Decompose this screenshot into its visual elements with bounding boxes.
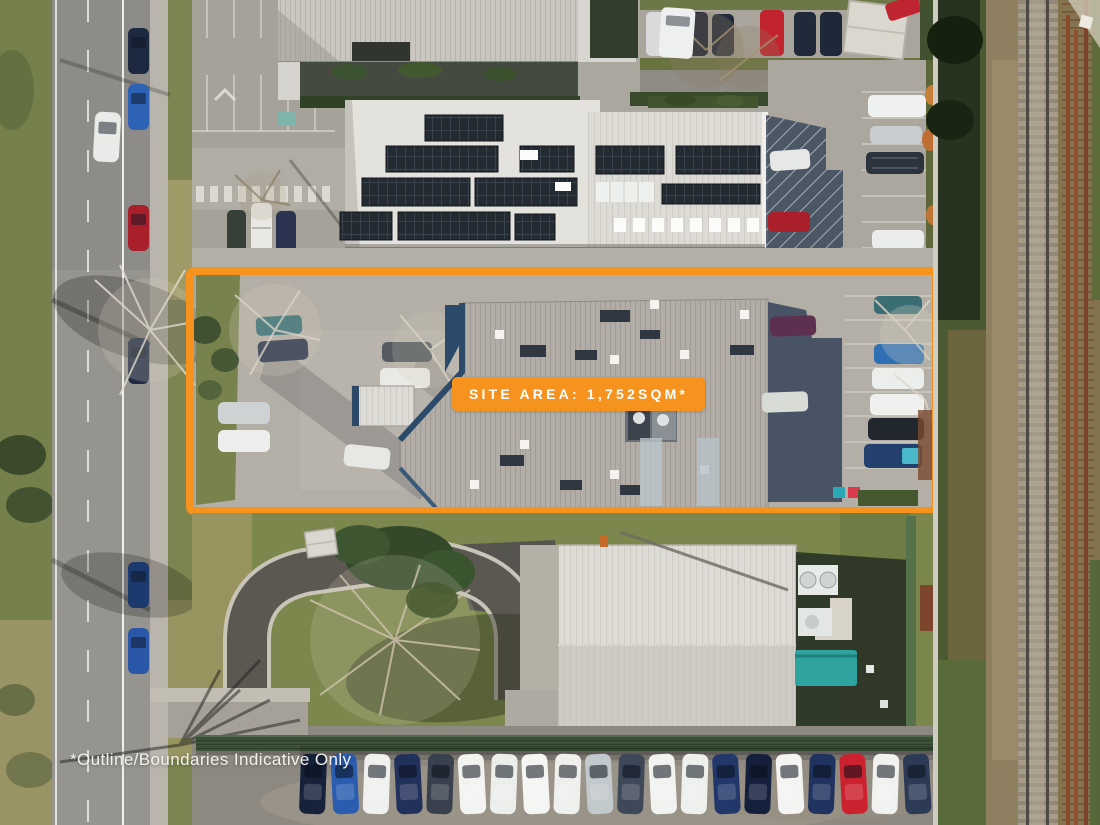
parked-car bbox=[712, 753, 741, 814]
small-shed bbox=[304, 528, 337, 558]
street-parked-car bbox=[128, 28, 149, 74]
parked-car bbox=[681, 754, 709, 815]
parked-car bbox=[775, 753, 804, 814]
street-parked-car bbox=[128, 562, 149, 608]
parked-car bbox=[808, 754, 836, 815]
island-tree bbox=[310, 555, 480, 725]
parked-car bbox=[648, 753, 677, 814]
street-parked-car bbox=[128, 84, 149, 130]
parked-car bbox=[585, 753, 614, 814]
roof-plant bbox=[625, 408, 677, 442]
green-fence bbox=[906, 516, 916, 730]
street-parked-car bbox=[128, 628, 149, 674]
moving-car bbox=[93, 111, 122, 162]
parked-car bbox=[426, 754, 454, 815]
parked-car bbox=[617, 754, 645, 815]
boundary-disclaimer: *Outline/Boundaries Indicative Only bbox=[70, 750, 351, 770]
parked-car bbox=[553, 754, 581, 815]
equipment-yard bbox=[795, 552, 910, 730]
rail-corridor bbox=[926, 0, 1100, 825]
site-area-label: SITE AREA: 1,752SQM* bbox=[452, 377, 705, 411]
parked-car bbox=[490, 754, 518, 815]
parked-car bbox=[521, 753, 550, 814]
north-east-carpark bbox=[766, 60, 940, 270]
parked-car bbox=[744, 754, 772, 815]
big-shed bbox=[558, 532, 796, 730]
parked-car bbox=[839, 753, 868, 814]
parked-car bbox=[903, 753, 932, 814]
office-building bbox=[340, 94, 768, 252]
parked-car bbox=[363, 754, 391, 815]
aerial-photo: SITE AREA: 1,752SQM* *Outline/Boundaries… bbox=[0, 0, 1100, 825]
parked-car bbox=[394, 753, 423, 814]
parked-car bbox=[871, 754, 899, 815]
carport bbox=[352, 386, 414, 426]
street-parked-car bbox=[128, 205, 149, 251]
parked-car bbox=[457, 753, 486, 814]
scene-svg bbox=[0, 0, 1100, 825]
white-van bbox=[658, 7, 695, 59]
